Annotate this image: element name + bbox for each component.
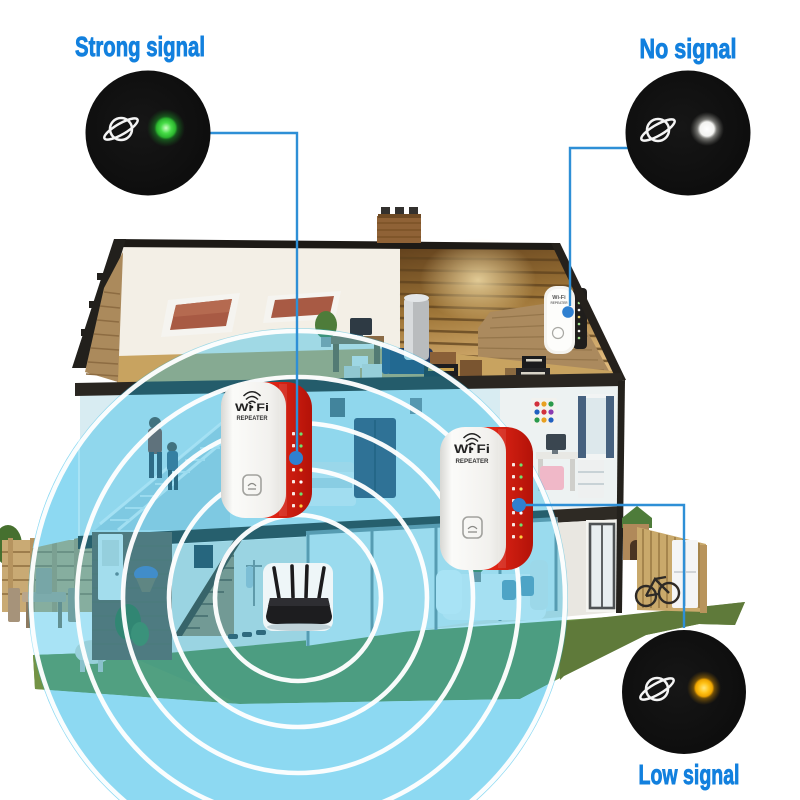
svg-text:No signal: No signal — [640, 33, 737, 64]
svg-text:Strong signal: Strong signal — [75, 31, 205, 62]
svg-text:Low signal: Low signal — [639, 759, 740, 790]
svg-text:REPEATER: REPEATER — [550, 301, 568, 305]
svg-text:REPEATER: REPEATER — [456, 458, 489, 465]
svg-text:REPEATER: REPEATER — [237, 416, 269, 422]
